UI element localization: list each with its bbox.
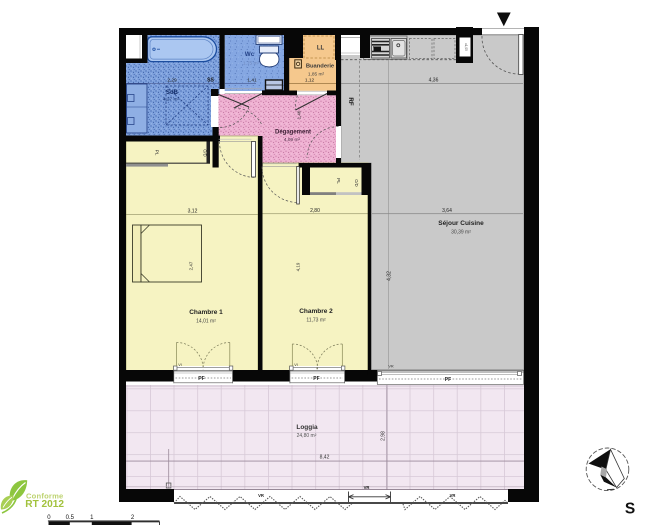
svg-text:VR: VR — [450, 493, 456, 498]
svg-text:O/D: O/D — [354, 179, 359, 186]
svg-text:2,29: 2,29 — [167, 78, 177, 84]
svg-text:PF: PF — [313, 376, 319, 382]
svg-text:30,39 m²: 30,39 m² — [451, 230, 471, 236]
svg-text:24,80 m²: 24,80 m² — [297, 433, 317, 439]
svg-text:Chambre 1: Chambre 1 — [189, 309, 223, 316]
svg-text:4,27 m²: 4,27 m² — [163, 97, 180, 103]
svg-text:11,73 m²: 11,73 m² — [306, 318, 326, 324]
svg-text:4,19: 4,19 — [296, 262, 301, 271]
svg-text:4,36: 4,36 — [429, 78, 439, 84]
svg-text:4,32: 4,32 — [387, 271, 393, 281]
svg-text:PF: PF — [445, 377, 451, 383]
svg-text:VR: VR — [364, 485, 370, 490]
svg-text:VI: VI — [294, 363, 298, 367]
svg-text:0.5: 0.5 — [66, 515, 75, 521]
svg-text:x1,05: x1,05 — [464, 43, 468, 51]
svg-text:Séjour Cuisine: Séjour Cuisine — [438, 220, 484, 227]
svg-text:1,85 m²: 1,85 m² — [308, 72, 325, 78]
svg-text:RF: RF — [347, 97, 354, 105]
svg-text:1,12: 1,12 — [305, 78, 315, 84]
svg-text:14,01 m²: 14,01 m² — [196, 319, 216, 325]
svg-text:Chambre 2: Chambre 2 — [299, 308, 333, 315]
svg-text:3,12: 3,12 — [188, 209, 198, 215]
svg-text:Wc: Wc — [245, 51, 255, 58]
svg-text:1,41: 1,41 — [247, 78, 257, 84]
svg-text:Loggia: Loggia — [296, 424, 318, 431]
svg-text:2,80: 2,80 — [310, 208, 320, 214]
svg-text:Dégagement: Dégagement — [275, 130, 311, 136]
svg-text:PF: PF — [198, 376, 204, 382]
svg-text:VR: VR — [388, 365, 394, 369]
svg-text:8,42: 8,42 — [320, 455, 330, 461]
svg-text:3,64: 3,64 — [442, 208, 452, 214]
svg-text:2,98: 2,98 — [381, 431, 387, 441]
svg-text:O/D: O/D — [203, 149, 208, 156]
svg-text:S: S — [625, 501, 635, 518]
svg-text:SS: SS — [207, 78, 214, 84]
svg-text:1,40: 1,40 — [297, 110, 302, 119]
svg-text:RT 2012: RT 2012 — [25, 499, 64, 510]
svg-text:PL: PL — [154, 150, 160, 156]
svg-text:4,09 m²: 4,09 m² — [284, 137, 301, 143]
svg-text:PL: PL — [335, 178, 341, 184]
svg-text:2,47: 2,47 — [189, 261, 194, 270]
svg-text:LL: LL — [317, 46, 325, 52]
svg-text:SdB: SdB — [166, 90, 179, 96]
svg-text:1,75 m²: 1,75 m² — [243, 61, 260, 67]
svg-text:Buanderie: Buanderie — [306, 64, 335, 70]
svg-text:VI: VI — [178, 363, 182, 367]
svg-text:VR: VR — [258, 493, 264, 498]
